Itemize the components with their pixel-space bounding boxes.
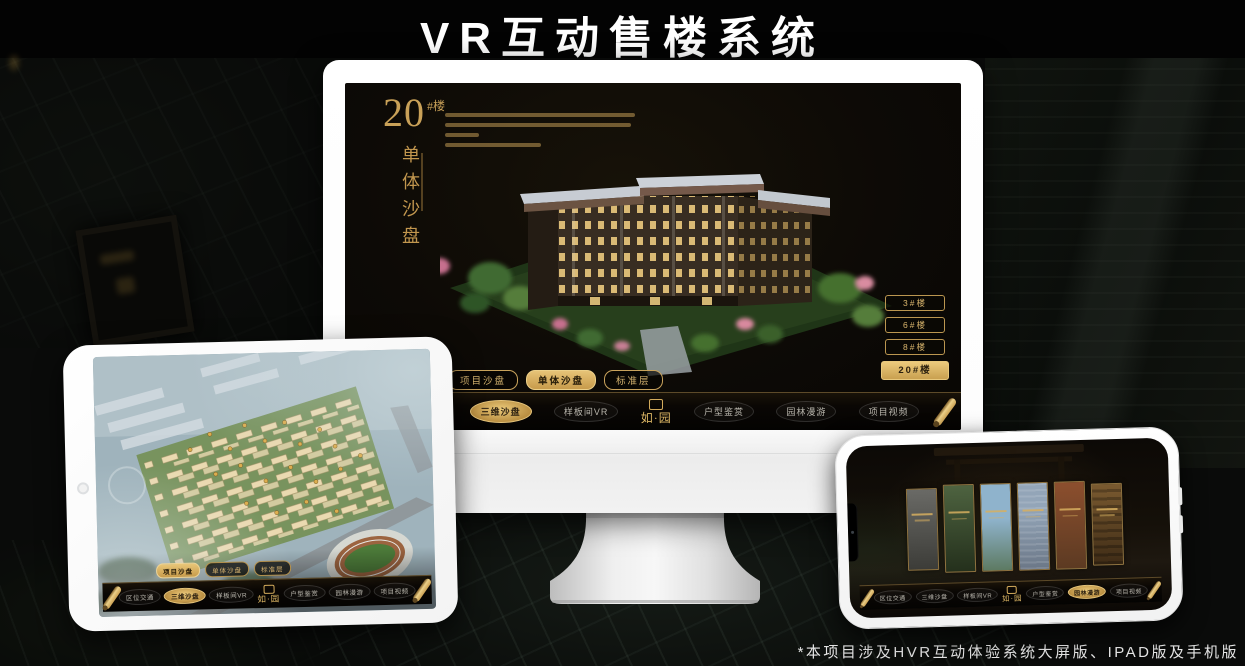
- subtab-floorplan[interactable]: 标准层: [254, 560, 291, 576]
- floor-button-3[interactable]: 3#楼: [885, 295, 945, 311]
- tablet-camera-icon: [77, 482, 89, 494]
- sandtable-subtabs: 项目沙盘 单体沙盘 标准层: [448, 370, 663, 390]
- nav-item-project-video[interactable]: 项目视频: [859, 401, 919, 422]
- text-line: [445, 113, 635, 117]
- phone-camera-icon: [851, 531, 854, 534]
- block-unit: #楼: [427, 97, 445, 114]
- phone-side-button: [1178, 487, 1183, 505]
- scroll-icon[interactable]: [1146, 580, 1161, 599]
- brand-logo-text: 如·园: [1002, 594, 1023, 602]
- block-number: 20: [383, 90, 425, 135]
- scene-gallery: [906, 483, 1124, 574]
- nav-item-showroom-vr[interactable]: 样板间VR: [209, 586, 254, 603]
- nav-item-project-video[interactable]: 项目视频: [373, 582, 415, 599]
- gallery-card[interactable]: [1054, 481, 1087, 570]
- subtab-project[interactable]: 项目沙盘: [448, 370, 518, 390]
- floor-button-20-selected[interactable]: 20#楼: [881, 361, 949, 380]
- floor-button-8[interactable]: 8#楼: [885, 339, 945, 355]
- gallery-card[interactable]: [943, 484, 976, 573]
- tablet-screen: 项目沙盘 单体沙盘 标准层 区位交通 三维沙盘 样板间VR 如·园 户型鉴赏 园…: [93, 349, 436, 617]
- page-title: VR互动售楼系统: [0, 2, 1245, 66]
- floor-button-6[interactable]: 6#楼: [885, 317, 945, 333]
- block-title: 20#楼: [383, 89, 445, 136]
- text-line: [445, 133, 479, 137]
- nav-item-garden-tour[interactable]: 园林漫游: [776, 401, 836, 422]
- tablet-mockup: 项目沙盘 单体沙盘 标准层 区位交通 三维沙盘 样板间VR 如·园 户型鉴赏 园…: [63, 336, 459, 631]
- brand-seal-icon: [649, 399, 663, 410]
- phone-screen: 区位交通 三维沙盘 样板间VR 如·园 户型鉴赏 园林漫游 项目视频: [846, 438, 1173, 619]
- nav-item-3d-sandtable-active[interactable]: 三维沙盘: [164, 587, 206, 604]
- gallery-card[interactable]: [1017, 482, 1050, 571]
- nav-item-location[interactable]: 区位交通: [874, 590, 912, 605]
- nav-item-3d-sandtable[interactable]: 三维沙盘: [915, 589, 953, 604]
- nav-item-unit-plans[interactable]: 户型鉴赏: [1026, 585, 1064, 600]
- subtab-floorplan[interactable]: 标准层: [604, 370, 663, 390]
- background-photo-right: [985, 58, 1245, 468]
- subtab-single-selected[interactable]: 单体沙盘: [526, 370, 596, 390]
- nav-item-garden-tour-active[interactable]: 园林漫游: [1068, 584, 1106, 599]
- frame-seal-smudge: [115, 276, 135, 295]
- scroll-icon[interactable]: [932, 396, 957, 427]
- gallery-card[interactable]: [906, 488, 939, 571]
- subtab-project-selected[interactable]: 项目沙盘: [156, 563, 200, 579]
- frame-text-smudge: [100, 250, 135, 265]
- brand-logo: 如·园: [1002, 585, 1023, 602]
- footnote: *本项目涉及HVR互动体验系统大屏版、IPAD版及手机版: [798, 641, 1239, 662]
- phone-mockup: 区位交通 三维沙盘 样板间VR 如·园 户型鉴赏 园林漫游 项目视频: [834, 426, 1183, 630]
- brand-logo: 如·园: [641, 399, 672, 424]
- nav-item-location[interactable]: 区位交通: [119, 588, 161, 605]
- text-line: [445, 123, 631, 127]
- nav-item-unit-plans[interactable]: 户型鉴赏: [694, 401, 754, 422]
- building-render: [440, 138, 900, 378]
- brand-seal-icon: [263, 584, 274, 593]
- brand-logo-text: 如·园: [641, 412, 672, 424]
- nav-item-3d-sandtable-active[interactable]: 三维沙盘: [470, 400, 532, 423]
- brand-logo-text: 如·园: [257, 594, 280, 603]
- gallery-card[interactable]: [980, 483, 1013, 572]
- brand-seal-icon: [1007, 586, 1017, 594]
- nav-item-garden-tour[interactable]: 园林漫游: [328, 583, 370, 600]
- phone-side-button: [1179, 515, 1184, 533]
- subtab-single[interactable]: 单体沙盘: [205, 561, 249, 577]
- monitor-stand: [538, 511, 772, 611]
- scroll-icon[interactable]: [860, 588, 875, 607]
- promo-canvas: VR互动售楼系统 20#楼 单体沙盘: [0, 0, 1245, 666]
- vertical-caption-line: [421, 153, 423, 211]
- nav-item-unit-plans[interactable]: 户型鉴赏: [283, 584, 325, 601]
- nav-item-project-video[interactable]: 项目视频: [1110, 583, 1148, 598]
- gallery-card[interactable]: [1091, 483, 1124, 566]
- vertical-subtitle: 单体沙盘: [397, 145, 423, 253]
- brand-logo: 如·园: [257, 584, 280, 603]
- floor-button-group: 3#楼 6#楼 8#楼 20#楼: [879, 295, 951, 386]
- background-picture-frame: [75, 215, 194, 348]
- nav-item-showroom-vr[interactable]: 样板间VR: [957, 587, 998, 602]
- nav-item-showroom-vr[interactable]: 样板间VR: [554, 401, 619, 422]
